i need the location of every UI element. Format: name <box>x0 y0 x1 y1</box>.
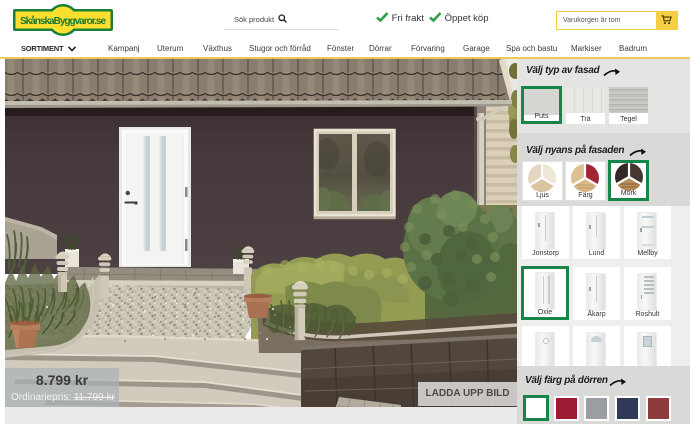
svg-text:SkånskaByggvaror.se: SkånskaByggvaror.se <box>20 15 106 27</box>
